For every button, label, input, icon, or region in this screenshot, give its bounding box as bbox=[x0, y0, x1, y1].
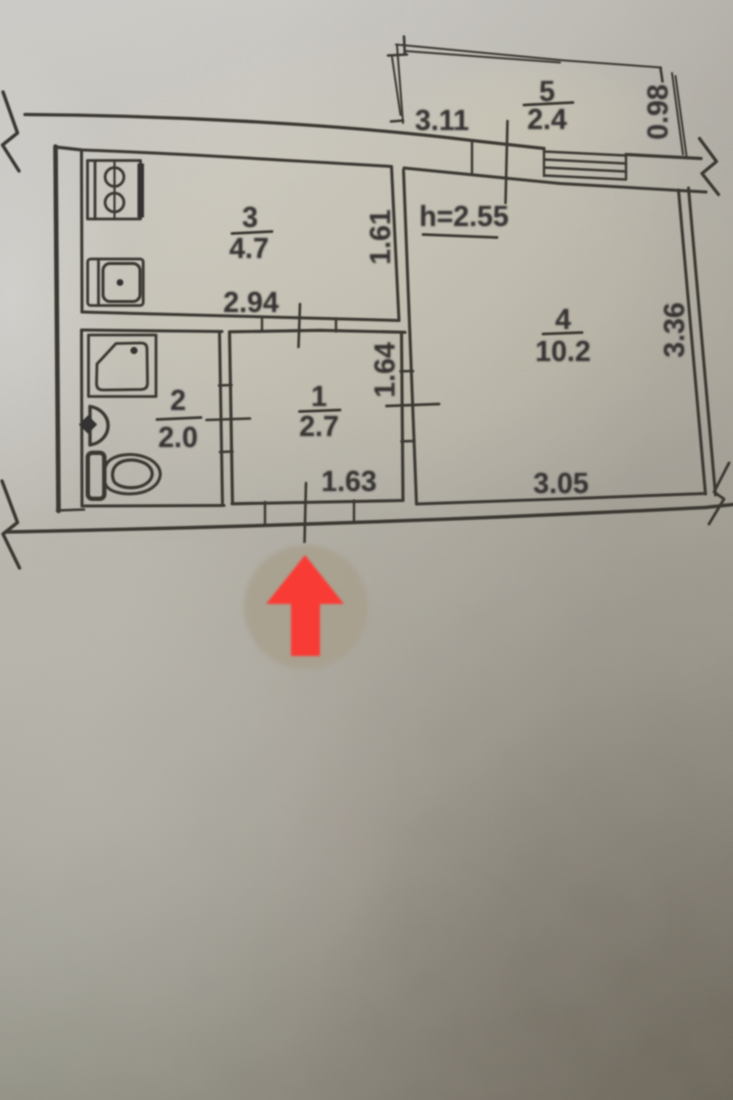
svg-text:2: 2 bbox=[170, 385, 186, 417]
svg-text:2.94: 2.94 bbox=[223, 287, 279, 319]
svg-text:3.05: 3.05 bbox=[533, 468, 589, 500]
svg-text:2.7: 2.7 bbox=[299, 411, 339, 443]
svg-text:3.11: 3.11 bbox=[415, 105, 469, 137]
svg-text:2.4: 2.4 bbox=[527, 104, 567, 136]
svg-text:4.7: 4.7 bbox=[229, 233, 269, 265]
svg-text:1.63: 1.63 bbox=[321, 466, 376, 498]
svg-text:3.36: 3.36 bbox=[659, 302, 691, 357]
svg-text:4: 4 bbox=[555, 304, 571, 336]
svg-text:0.98: 0.98 bbox=[643, 84, 675, 139]
svg-text:1.64: 1.64 bbox=[370, 342, 402, 398]
svg-text:3: 3 bbox=[242, 202, 258, 234]
svg-text:1: 1 bbox=[311, 381, 327, 413]
svg-text:2.0: 2.0 bbox=[158, 422, 198, 454]
svg-text:1.61: 1.61 bbox=[365, 209, 397, 265]
svg-text:10.2: 10.2 bbox=[535, 336, 590, 368]
svg-text:h=2.55: h=2.55 bbox=[419, 201, 509, 233]
